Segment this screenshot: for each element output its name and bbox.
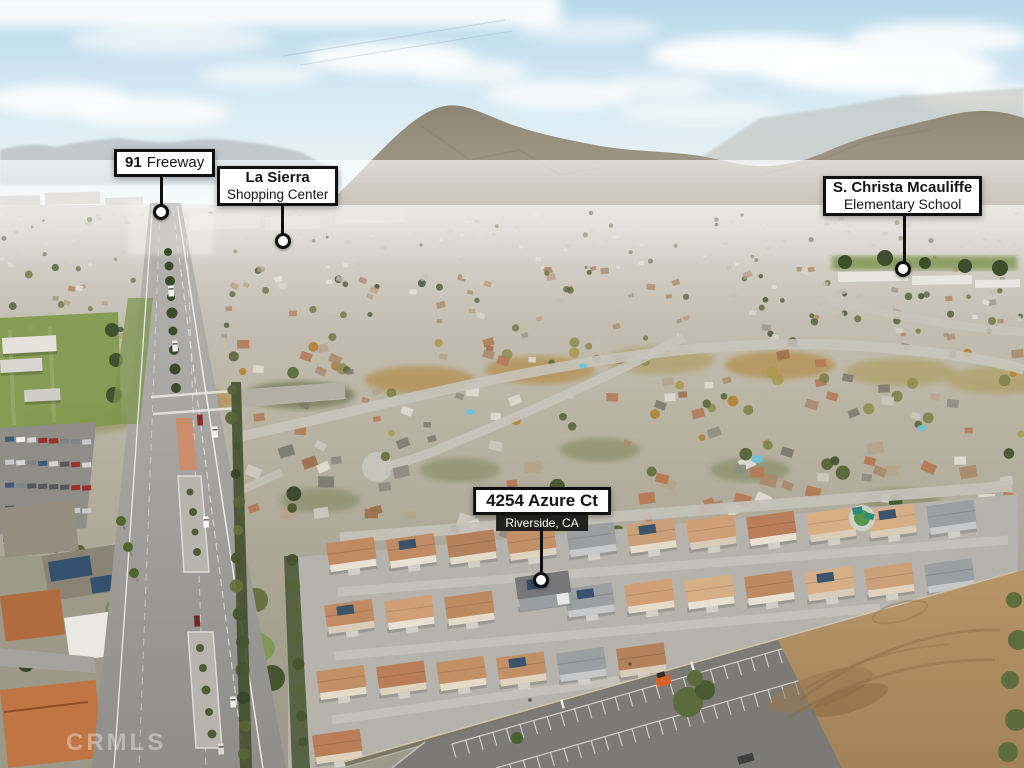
aerial-photo-stage: 91Freeway La Sierra Shopping Center S. C… xyxy=(0,0,1024,768)
callout-subject-property: 4254 Azure Ct Riverside, CA xyxy=(473,487,611,531)
callout-stem-property xyxy=(540,528,543,573)
location-marker-school xyxy=(895,261,911,277)
school-line1: S. Christa Mcauliffe xyxy=(833,180,972,197)
shopping-line2: Shopping Center xyxy=(227,187,328,202)
callout-stem-freeway xyxy=(160,172,163,206)
callout-stem-shopping xyxy=(281,203,284,237)
callout-stem-school xyxy=(903,212,906,262)
shopping-line1: La Sierra xyxy=(227,170,328,187)
property-address: 4254 Azure Ct xyxy=(473,487,611,515)
callout-shopping-center: La Sierra Shopping Center xyxy=(217,166,338,206)
school-line2: Elementary School xyxy=(833,197,972,213)
location-marker-freeway xyxy=(153,204,169,220)
freeway-number: 91 xyxy=(125,154,142,171)
crmls-watermark: CRMLS xyxy=(66,729,166,757)
callout-91-freeway: 91Freeway xyxy=(114,149,215,177)
location-marker-property xyxy=(533,572,549,588)
freeway-name: Freeway xyxy=(147,154,205,171)
playground xyxy=(849,505,875,531)
callout-school: S. Christa Mcauliffe Elementary School xyxy=(823,176,982,216)
aerial-scene xyxy=(0,0,1024,768)
location-marker-shopping xyxy=(275,233,291,249)
property-city: Riverside, CA xyxy=(496,515,587,531)
